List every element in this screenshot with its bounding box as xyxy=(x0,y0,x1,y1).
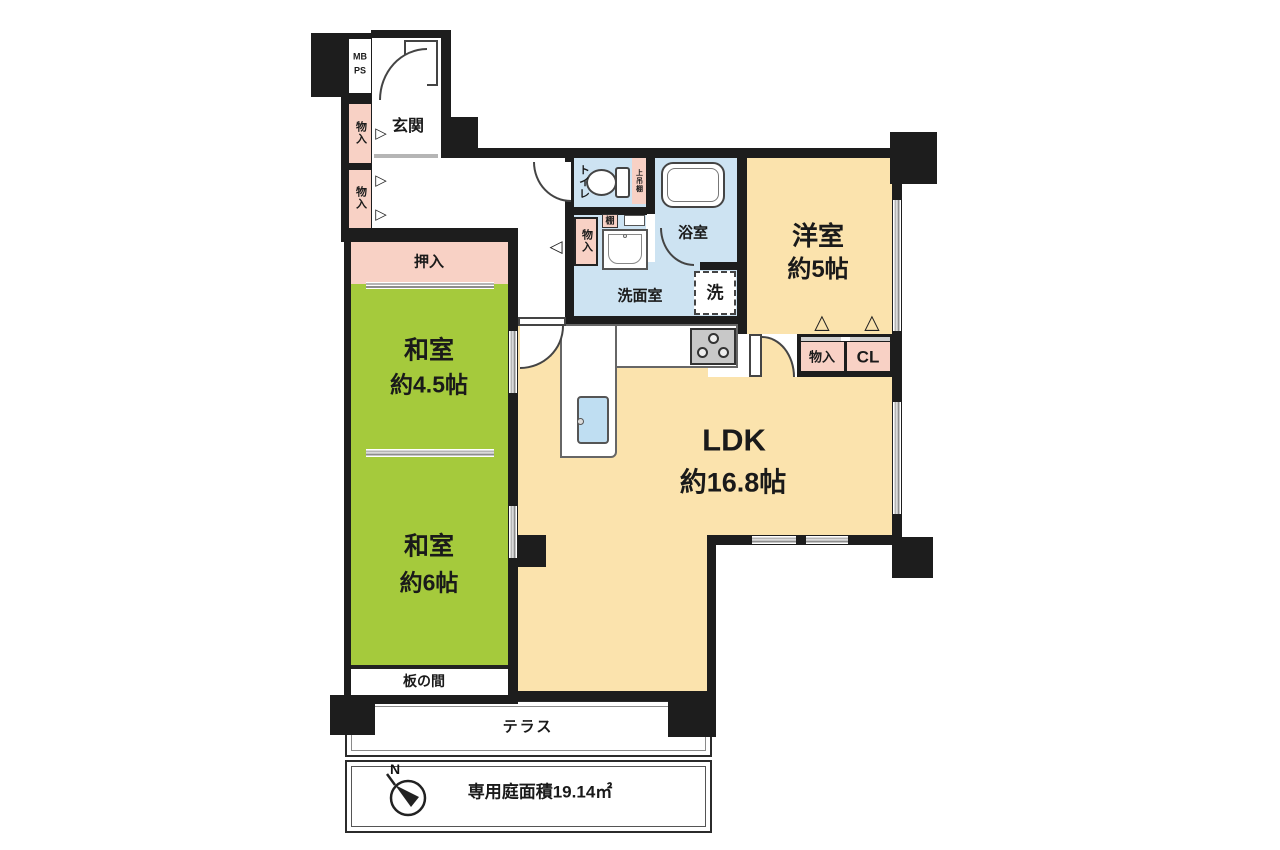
monoiri-left-2-label: 物入 xyxy=(355,186,366,210)
bifold-mark: ▷ xyxy=(375,124,387,142)
stove-burner xyxy=(697,347,708,358)
closet-monoiri-label: 物入 xyxy=(809,351,835,364)
ldk-name-label: LDK xyxy=(702,425,766,456)
washbasin-icon xyxy=(602,229,648,270)
wall xyxy=(892,537,933,578)
bathtub-inner xyxy=(667,168,719,202)
compass-icon: N xyxy=(378,762,434,822)
floor-plan: ▷ ▷ ▷ ◁ △ △ N MB PS 玄関 物入 物入 押入 和室 約4.5帖… xyxy=(0,0,1280,850)
itanoma-label: 板の間 xyxy=(403,674,445,688)
wall xyxy=(371,30,451,38)
bathtub-icon xyxy=(661,162,725,208)
toilet-bowl-icon xyxy=(586,169,617,196)
wall xyxy=(737,148,747,334)
mb-label: MB xyxy=(353,53,367,62)
toilet-label: トイレ xyxy=(578,164,589,200)
wall xyxy=(448,117,478,152)
closet-track xyxy=(801,337,890,341)
window-ldk-east xyxy=(893,402,901,514)
bifold-mark: ▷ xyxy=(375,205,387,223)
window-youshitsu-east xyxy=(893,200,901,331)
wall xyxy=(700,262,737,270)
wall xyxy=(344,240,351,700)
kitchen-sink-icon xyxy=(577,396,609,444)
bifold-mark: ◁ xyxy=(549,237,562,257)
closet-cl-label: CL xyxy=(857,349,880,366)
terrace-label: テラス xyxy=(503,720,554,735)
wall xyxy=(707,535,893,545)
washitsu45-size-label: 約4.5帖 xyxy=(390,374,468,397)
counter-box xyxy=(624,215,645,226)
wall xyxy=(330,695,375,735)
shelf-label: 棚 xyxy=(605,217,614,226)
bifold-mark: △ xyxy=(864,310,879,335)
bifold-mark: ▷ xyxy=(375,171,387,189)
stove-burner xyxy=(718,347,729,358)
wall xyxy=(668,699,714,737)
bifold-mark: △ xyxy=(814,310,829,335)
bathroom-label: 浴室 xyxy=(678,226,708,241)
stove-burner xyxy=(708,333,719,344)
youshitsu-name-label: 洋室 xyxy=(792,223,844,249)
window-ldk-south-2 xyxy=(806,536,848,544)
fusuma-oshiire xyxy=(366,282,494,289)
oshiire-label: 押入 xyxy=(414,255,444,270)
stove-icon xyxy=(690,328,736,365)
genkan-label: 玄関 xyxy=(392,119,424,135)
garden-area-label: 専用庭面積19.14㎡ xyxy=(468,784,613,801)
window-ldk-south-1 xyxy=(752,536,796,544)
washer-label: 洗 xyxy=(707,285,724,302)
upper-shelf-label: 上吊棚 xyxy=(636,169,643,193)
kitchen-counter-patch xyxy=(563,327,614,365)
sink-faucet xyxy=(577,418,584,425)
fusuma-between-washitsu xyxy=(366,449,494,457)
senmenshitsu-label: 洗面室 xyxy=(617,289,662,304)
room-washitsu-4-5 xyxy=(351,284,508,452)
wall xyxy=(344,228,517,242)
wall xyxy=(646,148,655,214)
genkan-step-line xyxy=(374,154,438,158)
toilet-door-arc xyxy=(533,162,571,202)
wall xyxy=(441,148,893,158)
monoiri-left-1-label: 物入 xyxy=(355,121,366,145)
washitsu6-size-label: 約6帖 xyxy=(400,572,459,595)
washitsu45-name-label: 和室 xyxy=(404,339,454,364)
washitsu6-name-label: 和室 xyxy=(404,535,454,560)
compass-north-label: N xyxy=(390,762,400,777)
hall-door-leaf xyxy=(518,317,566,326)
washbasin-bowl xyxy=(608,234,642,264)
hall-monoiri-label: 物入 xyxy=(581,229,592,253)
fusuma-washitsu45-east xyxy=(509,331,517,393)
wall xyxy=(508,228,518,701)
ps-label: PS xyxy=(354,67,366,76)
washbasin-faucet xyxy=(623,234,627,238)
fusuma-washitsu6-east xyxy=(509,506,517,558)
ldk-size-label: 約16.8帖 xyxy=(680,470,787,497)
youshitsu-door-leaf xyxy=(749,334,762,377)
youshitsu-size-label: 約5帖 xyxy=(787,258,848,282)
wall xyxy=(515,535,546,567)
toilet-tank xyxy=(615,167,630,198)
